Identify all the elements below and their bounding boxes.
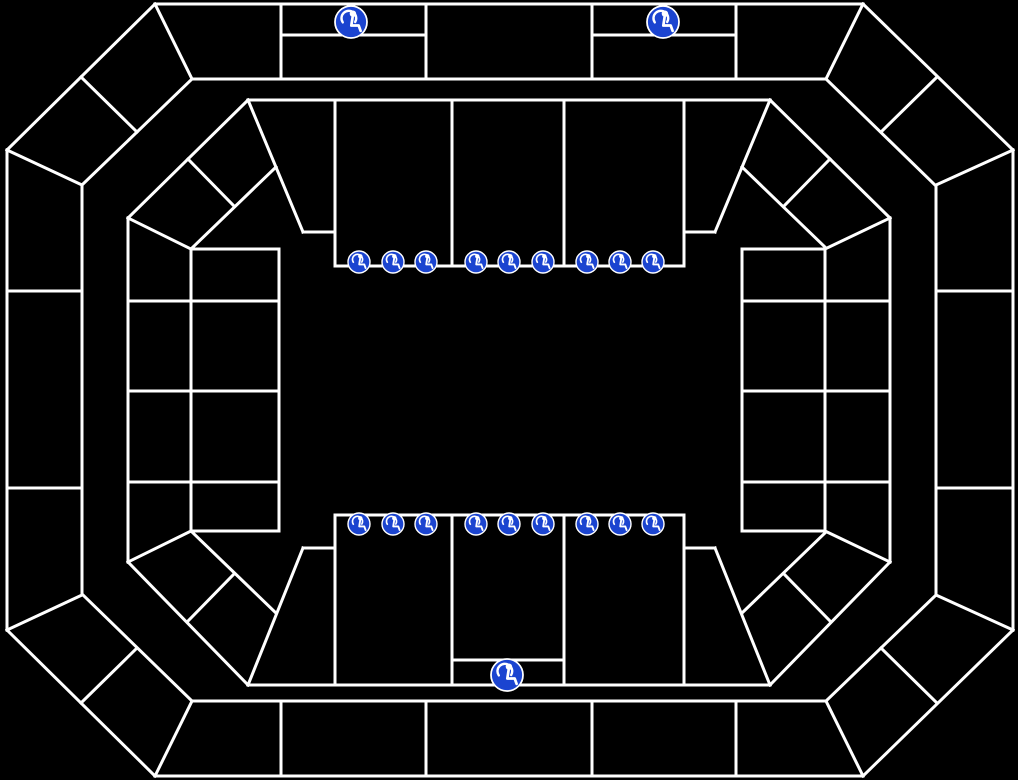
wheelchair-accessible-icon[interactable] — [532, 251, 554, 273]
wheelchair-accessible-icon[interactable] — [532, 513, 554, 535]
wheelchair-accessible-icon[interactable] — [498, 513, 520, 535]
wheelchair-accessible-icon[interactable] — [348, 513, 370, 535]
wheelchair-accessible-icon[interactable] — [498, 251, 520, 273]
wheelchair-accessible-icon[interactable] — [348, 251, 370, 273]
wheelchair-accessible-icon[interactable] — [335, 6, 367, 38]
arena-seating-map-page — [0, 0, 1018, 780]
wheelchair-accessible-icon[interactable] — [609, 251, 631, 273]
wheelchair-accessible-icon[interactable] — [642, 251, 664, 273]
wheelchair-accessible-icon[interactable] — [647, 6, 679, 38]
wheelchair-accessible-icon[interactable] — [609, 513, 631, 535]
wheelchair-accessible-icon[interactable] — [576, 513, 598, 535]
wheelchair-accessible-icon[interactable] — [415, 251, 437, 273]
wheelchair-accessible-icon[interactable] — [382, 251, 404, 273]
wheelchair-accessible-icon[interactable] — [415, 513, 437, 535]
wheelchair-accessible-icon[interactable] — [642, 513, 664, 535]
wheelchair-accessible-icon[interactable] — [465, 251, 487, 273]
wheelchair-accessible-icon[interactable] — [382, 513, 404, 535]
wheelchair-accessible-icon[interactable] — [491, 659, 523, 691]
wheelchair-accessible-icon[interactable] — [465, 513, 487, 535]
seating-map — [0, 0, 1018, 780]
wheelchair-accessible-icon[interactable] — [576, 251, 598, 273]
